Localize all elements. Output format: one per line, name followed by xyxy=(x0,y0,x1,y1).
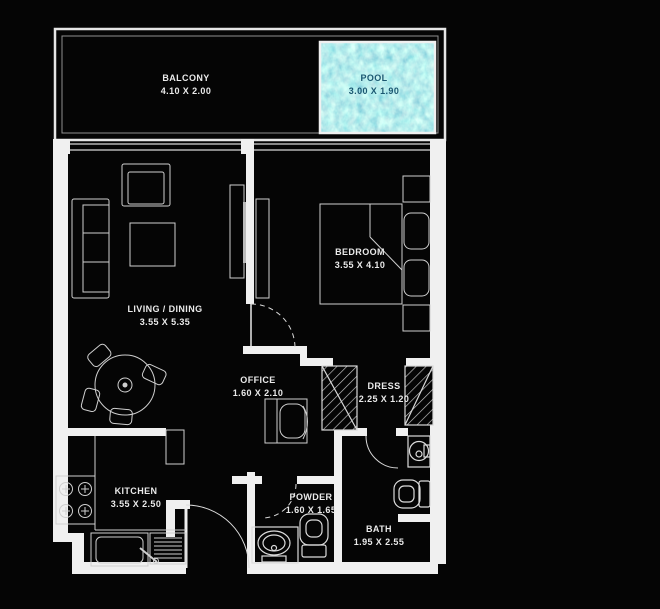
bath-washbasin xyxy=(408,436,430,467)
room-name: POWDER xyxy=(286,491,336,504)
room-dims: 3.00 X 1.90 xyxy=(349,85,399,98)
armchair xyxy=(122,164,170,206)
wall-office-top xyxy=(243,346,307,354)
room-name: BEDROOM xyxy=(335,246,385,259)
pillow xyxy=(404,260,429,296)
room-name: DRESS xyxy=(359,380,409,393)
dining-table xyxy=(80,343,167,425)
wall-kitchen-top xyxy=(66,428,166,436)
room-label-dress: DRESS 2.25 X 1.20 xyxy=(359,380,409,406)
nightstand-top xyxy=(403,176,430,202)
room-name: KITCHEN xyxy=(111,485,161,498)
wall-pier-mid xyxy=(241,139,254,154)
wall-bottom-right xyxy=(247,562,438,574)
drainer xyxy=(150,533,186,564)
room-name: LIVING / DINING xyxy=(127,303,202,316)
room-dims: 3.55 X 5.35 xyxy=(127,316,202,329)
room-label-office: OFFICE 1.60 X 2.10 xyxy=(233,374,283,400)
wall-powder-left xyxy=(247,472,255,566)
room-dims: 1.60 X 1.65 xyxy=(286,504,336,517)
burner xyxy=(79,483,92,496)
room-dims: 3.55 X 4.10 xyxy=(335,259,385,272)
floor-plan: BALCONY 4.10 X 2.00 POOL 3.00 X 1.90 LIV… xyxy=(0,0,660,609)
wall-bedroom-bottom-left xyxy=(300,358,333,366)
wall-right xyxy=(430,139,446,564)
bath-fixtures xyxy=(394,436,430,508)
bath-toilet xyxy=(394,480,430,508)
bedroom-cabinet xyxy=(256,199,269,298)
room-label-bath: BATH 1.95 X 2.55 xyxy=(354,523,404,549)
room-dims: 4.10 X 2.00 xyxy=(161,85,211,98)
tv-unit xyxy=(230,185,246,278)
tall-cabinet xyxy=(166,430,184,464)
room-label-balcony: BALCONY 4.10 X 2.00 xyxy=(161,72,211,98)
room-label-living: LIVING / DINING 3.55 X 5.35 xyxy=(127,303,202,329)
wall-powder-top xyxy=(297,476,337,484)
floor-plan-drawing xyxy=(0,0,660,609)
room-name: OFFICE xyxy=(233,374,283,387)
room-label-kitchen: KITCHEN 3.55 X 2.50 xyxy=(111,485,161,511)
burner xyxy=(79,505,92,518)
coffee-table xyxy=(130,223,175,266)
room-dims: 2.25 X 1.20 xyxy=(359,393,409,406)
room-name: POOL xyxy=(349,72,399,85)
kitchen-sink xyxy=(91,533,159,566)
dining-chair xyxy=(86,343,112,369)
bath-door xyxy=(366,436,398,468)
office-chair xyxy=(280,404,308,439)
pillow xyxy=(404,213,429,249)
wall-bedroom-bottom-right xyxy=(406,358,432,366)
room-name: BALCONY xyxy=(161,72,211,85)
powder-toilet xyxy=(300,514,328,557)
room-name: BATH xyxy=(354,523,404,536)
room-dims: 3.55 X 2.50 xyxy=(111,498,161,511)
office-furniture xyxy=(265,399,308,443)
wall-left xyxy=(53,139,68,541)
powder-fixtures xyxy=(252,514,328,563)
bath-ledge xyxy=(398,514,430,522)
room-dims: 1.95 X 2.55 xyxy=(354,536,404,549)
dining-chair xyxy=(109,408,132,425)
entrance-door xyxy=(186,505,249,568)
room-label-pool: POOL 3.00 X 1.90 xyxy=(349,72,399,98)
nightstand-bottom xyxy=(403,305,430,331)
room-dims: 1.60 X 2.10 xyxy=(233,387,283,400)
room-label-bedroom: BEDROOM 3.55 X 4.10 xyxy=(335,246,385,272)
powder-washbasin xyxy=(252,527,298,563)
dining-chair xyxy=(141,363,167,386)
room-label-powder: POWDER 1.60 X 1.65 xyxy=(286,491,336,517)
dining-chair xyxy=(80,387,100,412)
wall-living-bedroom xyxy=(246,152,254,304)
bedroom-door xyxy=(251,304,295,348)
sofa xyxy=(72,199,109,298)
